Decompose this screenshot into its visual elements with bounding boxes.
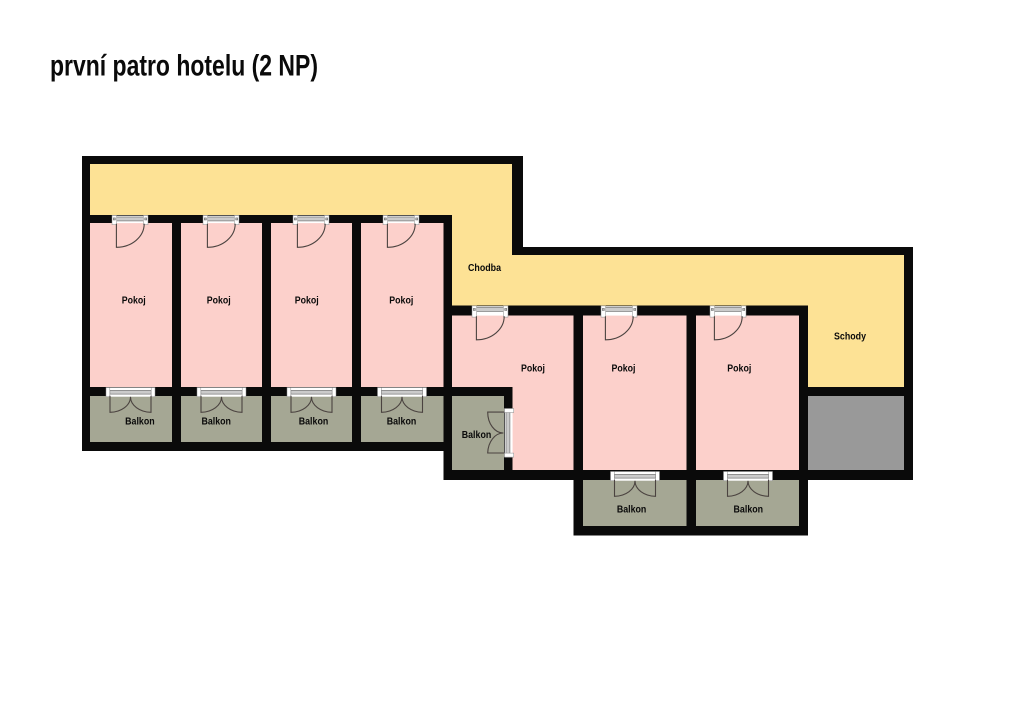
svg-text:Balkon: Balkon (125, 417, 154, 428)
svg-text:Pokoj: Pokoj (727, 363, 751, 374)
svg-text:Balkon: Balkon (201, 417, 231, 428)
svg-text:Balkon: Balkon (299, 417, 329, 428)
svg-text:Chodba: Chodba (468, 263, 501, 274)
svg-text:Balkon: Balkon (734, 505, 764, 516)
svg-text:Pokoj: Pokoj (521, 363, 545, 374)
svg-text:Pokoj: Pokoj (612, 363, 636, 374)
svg-text:Pokoj: Pokoj (389, 295, 413, 306)
svg-text:Balkon: Balkon (462, 430, 492, 441)
svg-text:Pokoj: Pokoj (122, 295, 146, 306)
svg-text:Balkon: Balkon (617, 505, 647, 516)
svg-text:Schody: Schody (834, 331, 866, 342)
svg-text:Pokoj: Pokoj (295, 295, 319, 306)
svg-text:Balkon: Balkon (387, 417, 417, 428)
svg-text:první patro hotelu (2 NP): první patro hotelu (2 NP) (50, 50, 318, 83)
svg-text:Pokoj: Pokoj (207, 295, 231, 306)
